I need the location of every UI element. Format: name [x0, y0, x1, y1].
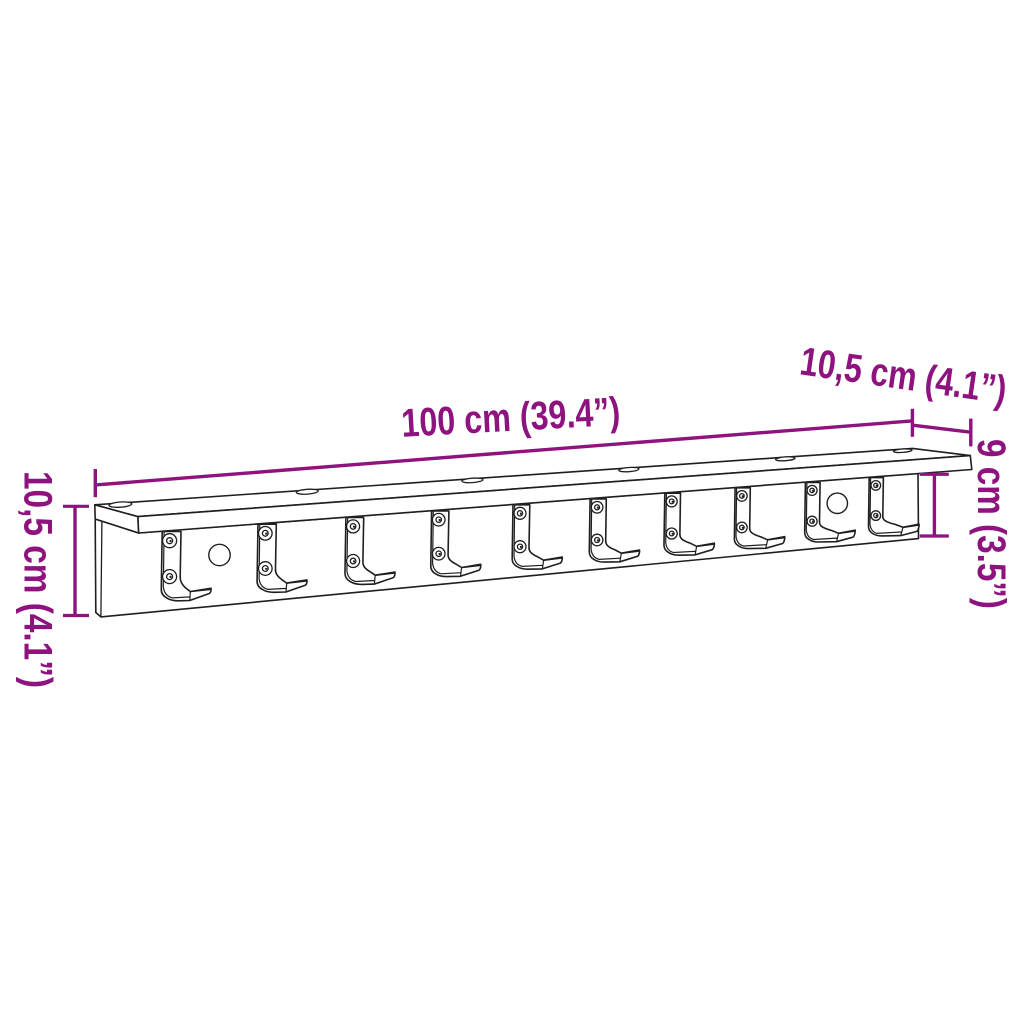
- svg-text:9 cm (3.5”): 9 cm (3.5”): [969, 439, 1013, 609]
- svg-text:100 cm (39.4”): 100 cm (39.4”): [400, 390, 621, 446]
- svg-text:10,5 cm (4.1”): 10,5 cm (4.1”): [797, 340, 1009, 413]
- svg-text:10,5 cm (4.1”): 10,5 cm (4.1”): [16, 471, 60, 688]
